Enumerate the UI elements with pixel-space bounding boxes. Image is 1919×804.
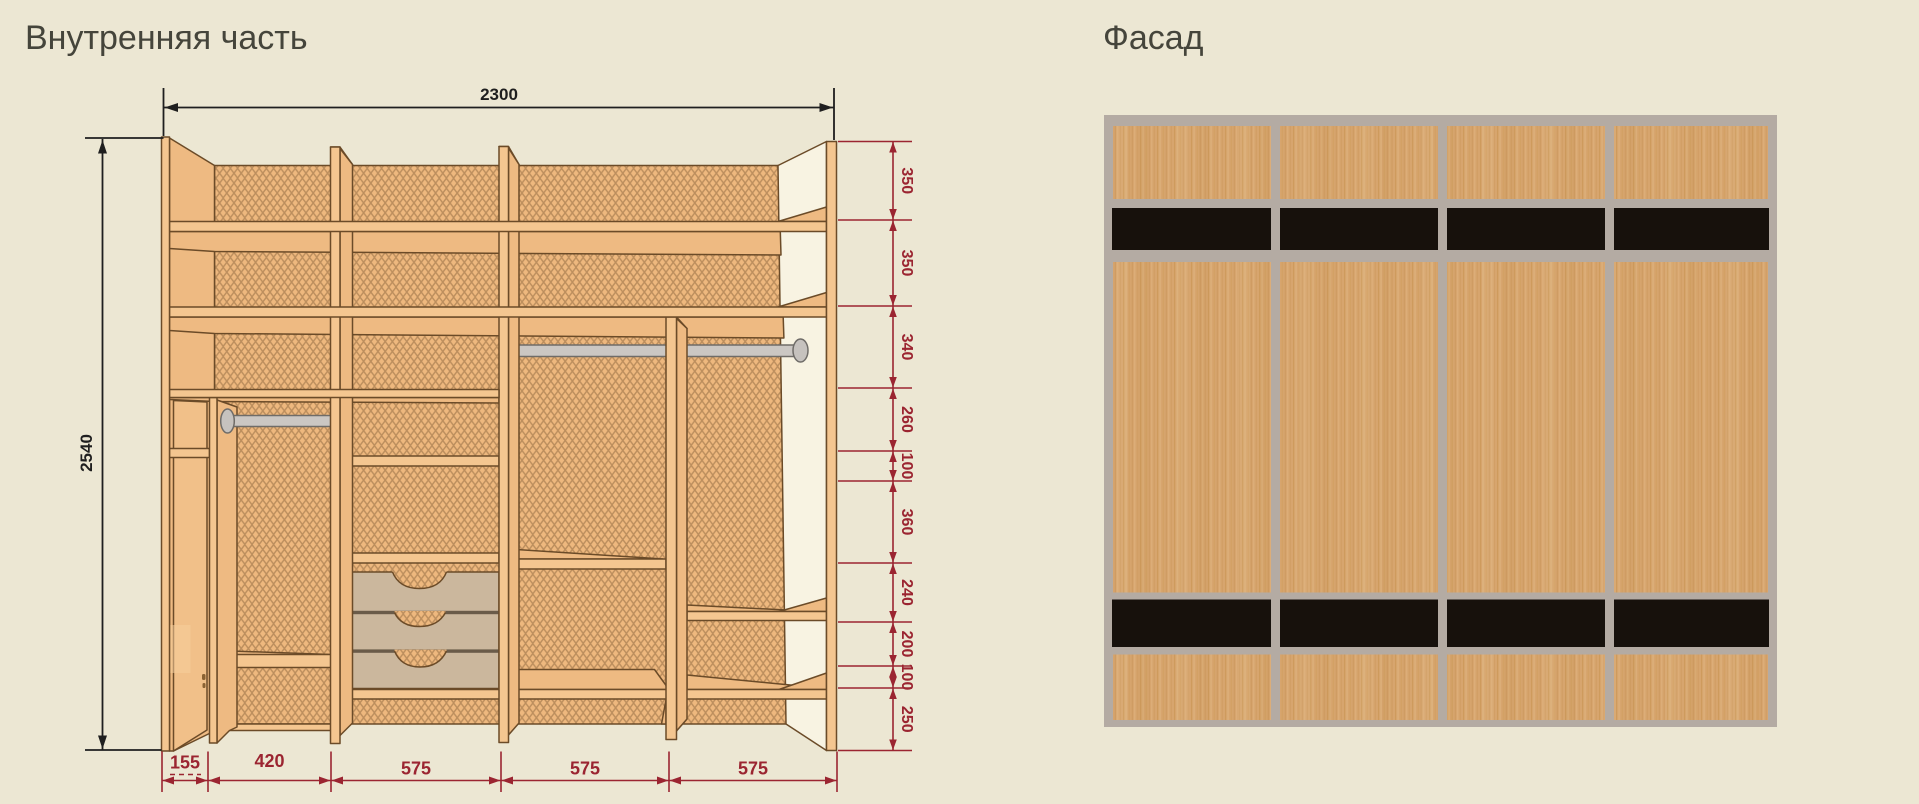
svg-text:100: 100 [898,664,915,691]
svg-text:100: 100 [898,453,915,480]
svg-text:2300: 2300 [480,85,518,104]
svg-text:250: 250 [898,706,915,733]
svg-text:155: 155 [170,753,200,773]
svg-text:575: 575 [738,759,768,779]
svg-text:360: 360 [898,509,915,536]
svg-text:420: 420 [254,751,284,771]
svg-text:575: 575 [570,759,600,779]
svg-text:260: 260 [898,406,915,433]
svg-text:350: 350 [898,250,915,277]
svg-text:Фасад: Фасад [1103,19,1204,57]
svg-text:Внутренняя часть: Внутренняя часть [25,19,308,57]
svg-text:2540: 2540 [77,434,96,472]
svg-text:575: 575 [401,759,431,779]
svg-text:350: 350 [898,167,915,194]
svg-text:240: 240 [898,579,915,606]
svg-text:200: 200 [898,631,915,658]
svg-text:340: 340 [898,334,915,361]
